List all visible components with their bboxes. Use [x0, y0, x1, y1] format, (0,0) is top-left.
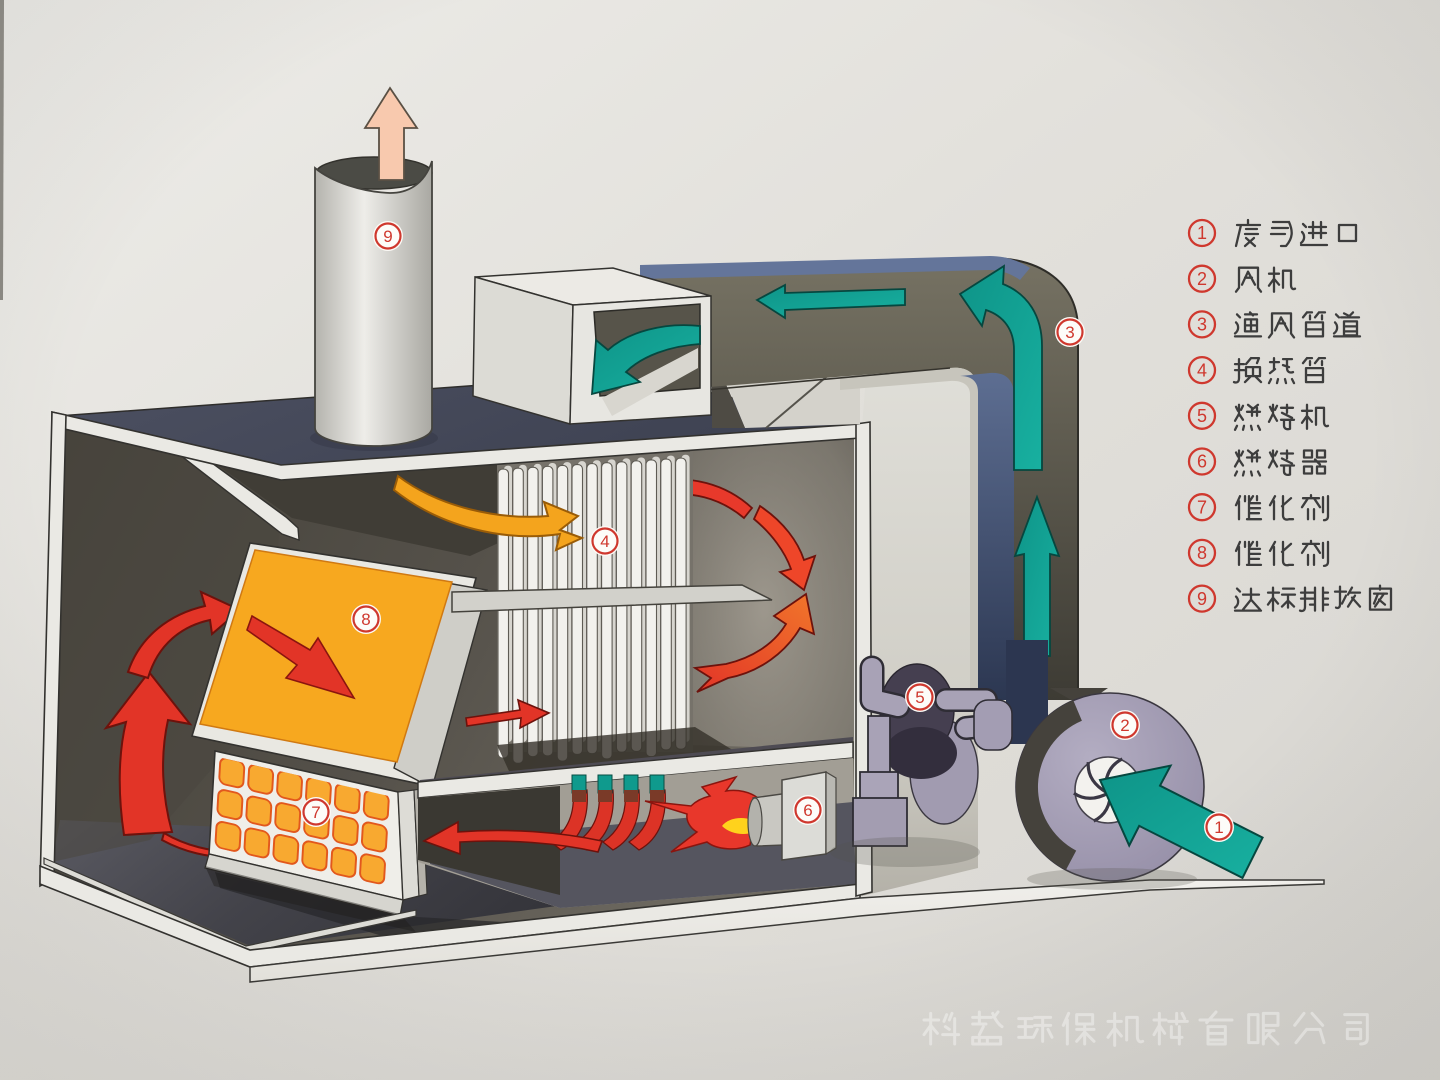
svg-text:7: 7	[1197, 497, 1207, 517]
svg-text:2: 2	[1197, 269, 1207, 289]
svg-text:9: 9	[1197, 589, 1207, 609]
svg-text:1: 1	[1214, 818, 1223, 837]
svg-text:3: 3	[1065, 323, 1074, 342]
svg-text:8: 8	[1197, 543, 1207, 563]
svg-text:8: 8	[361, 610, 370, 629]
svg-text:4: 4	[600, 532, 609, 551]
svg-text:4: 4	[1197, 360, 1207, 380]
svg-text:7: 7	[311, 803, 320, 822]
svg-text:1: 1	[1197, 223, 1207, 243]
svg-text:9: 9	[383, 227, 392, 246]
svg-text:6: 6	[803, 801, 812, 820]
svg-text:3: 3	[1197, 315, 1207, 335]
svg-text:5: 5	[1197, 406, 1207, 426]
svg-text:6: 6	[1197, 452, 1207, 472]
svg-text:5: 5	[915, 688, 924, 707]
svg-text:2: 2	[1120, 716, 1129, 735]
